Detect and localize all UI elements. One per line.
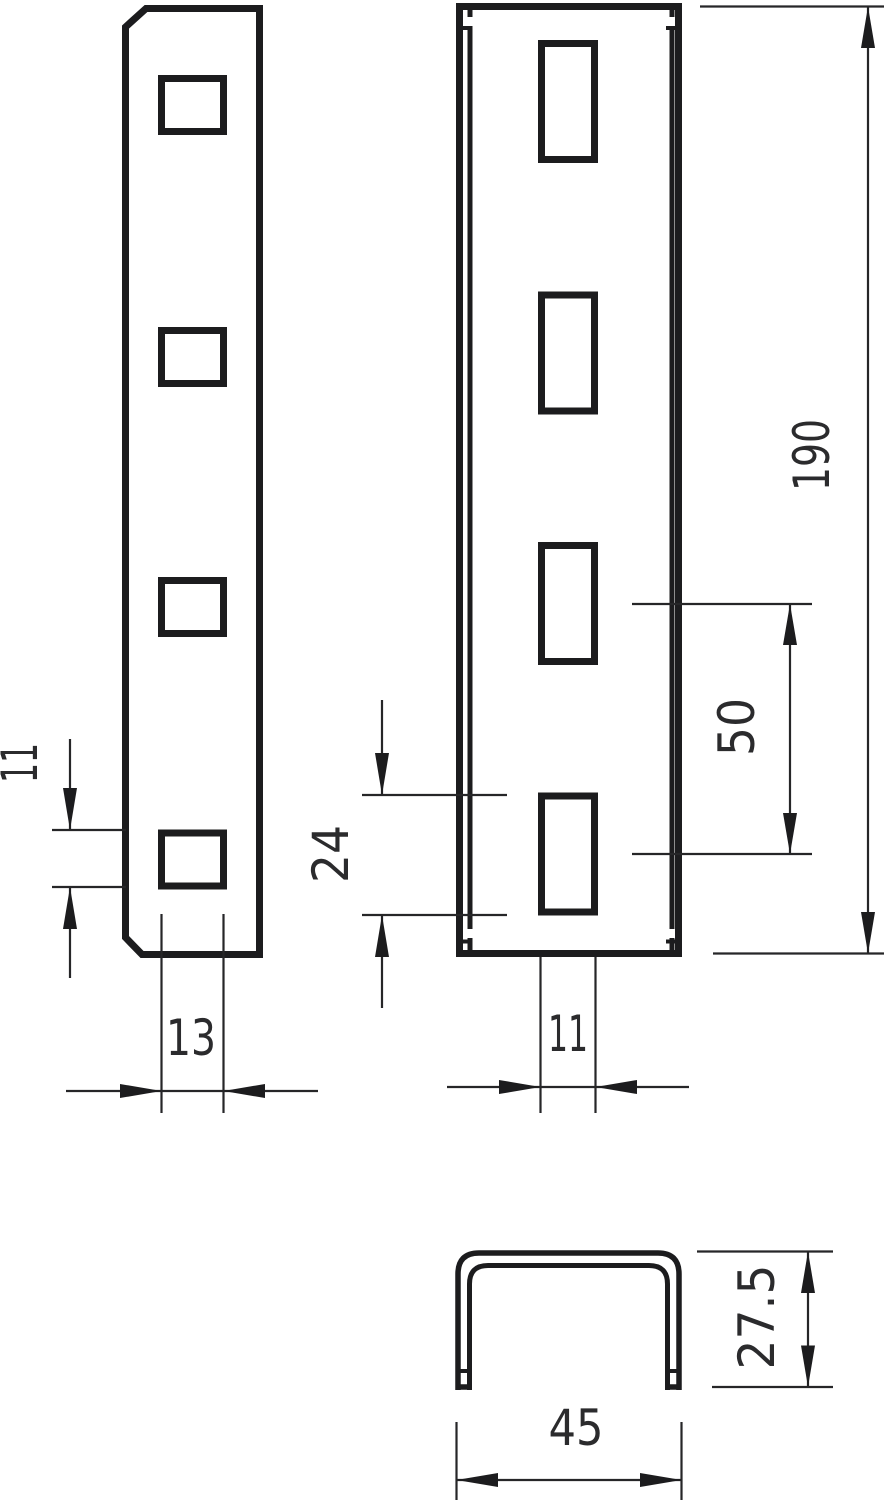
dimension-slot-spacing: 50 xyxy=(632,604,812,854)
dimension-slot-length: 24 xyxy=(302,700,507,1008)
dimension-label: 50 xyxy=(708,698,766,756)
side-view-hole xyxy=(162,581,224,634)
dimension-slot-width: 11 xyxy=(447,957,689,1113)
arrowhead-up-icon xyxy=(783,604,797,645)
arrowhead-down-icon xyxy=(783,813,797,854)
front-view-outline xyxy=(460,7,679,954)
arrowhead-left-icon xyxy=(457,1473,499,1487)
dimension-profile-width: 45 xyxy=(457,1399,682,1500)
dimension-label: 27.5 xyxy=(728,1265,786,1370)
arrowhead-right-icon xyxy=(499,1080,541,1094)
front-view xyxy=(457,7,681,954)
arrowhead-up-icon xyxy=(801,1252,815,1294)
profile-inner-contour xyxy=(470,1266,668,1391)
front-view-slot xyxy=(542,44,595,160)
dimension-label: 24 xyxy=(302,825,360,883)
side-view xyxy=(126,9,260,955)
arrowhead-left-icon xyxy=(596,1080,638,1094)
dimension-profile-height: 27.5 xyxy=(697,1252,833,1388)
arrowhead-down-icon xyxy=(375,753,389,795)
dimension-label: 45 xyxy=(549,1399,604,1457)
arrowhead-up-icon xyxy=(63,887,77,929)
arrowhead-left-icon xyxy=(224,1084,266,1098)
arrowhead-down-icon xyxy=(63,788,77,830)
dimension-side-hole-width: 13 xyxy=(66,914,318,1113)
dimension-label: 11 xyxy=(548,1005,588,1063)
dimension-label: 13 xyxy=(166,1009,216,1067)
front-view-slot xyxy=(542,546,595,662)
front-view-slot xyxy=(542,295,595,411)
side-view-hole xyxy=(162,331,224,384)
technical-drawing: 11 13 190 xyxy=(0,0,886,1500)
arrowhead-up-icon xyxy=(375,915,389,957)
dimension-label: 11 xyxy=(0,743,49,783)
side-view-hole xyxy=(162,79,224,132)
arrowhead-down-icon xyxy=(801,1346,815,1388)
arrowhead-down-icon xyxy=(861,912,875,954)
arrowhead-up-icon xyxy=(861,7,875,49)
arrowhead-right-icon xyxy=(120,1084,162,1098)
cross-section-view xyxy=(456,1253,681,1390)
side-view-hole xyxy=(162,833,224,886)
dimension-side-hole-height: 11 xyxy=(0,739,126,978)
technical-drawing-page: 11 13 190 xyxy=(0,0,886,1500)
side-view-outline xyxy=(126,9,260,955)
profile-outer-contour xyxy=(458,1253,679,1390)
dimension-label: 190 xyxy=(783,419,841,491)
front-view-slot xyxy=(542,796,595,912)
dimension-total-length: 190 xyxy=(700,7,884,954)
arrowhead-right-icon xyxy=(640,1473,682,1487)
